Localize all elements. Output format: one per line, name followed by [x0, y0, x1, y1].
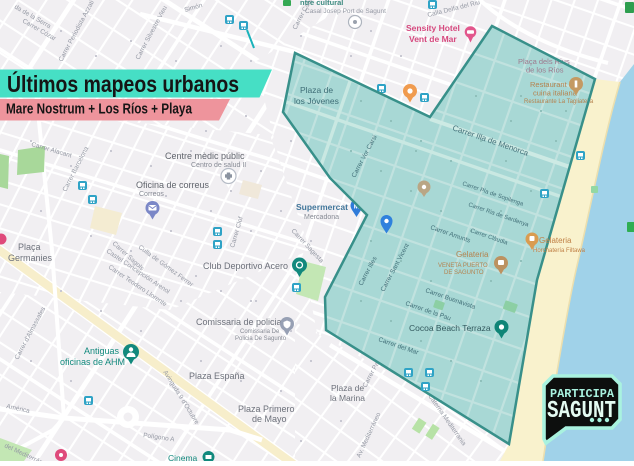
svg-text:los Jóvenes: los Jóvenes	[294, 96, 339, 106]
svg-text:Oficina de correus: Oficina de correus	[136, 180, 210, 190]
svg-text:Cocoa Beach Terraza: Cocoa Beach Terraza	[409, 323, 491, 333]
svg-text:DE SAGUNTO: DE SAGUNTO	[444, 270, 484, 276]
svg-text:de los Ríos: de los Ríos	[526, 66, 564, 75]
svg-text:de Mayo: de Mayo	[252, 414, 287, 424]
svg-text:cuina italiana: cuina italiana	[533, 89, 578, 98]
svg-text:Horchatería Filtawa: Horchatería Filtawa	[533, 248, 586, 254]
svg-text:Gelateria: Gelateria	[456, 250, 489, 259]
svg-text:Últimos mapeos urbanos: Últimos mapeos urbanos	[7, 70, 239, 97]
svg-text:Policia De Sagunto: Policia De Sagunto	[235, 336, 287, 342]
svg-text:oficinas de AHM: oficinas de AHM	[60, 357, 125, 367]
svg-text:VENETA PUERTO: VENETA PUERTO	[438, 263, 488, 269]
svg-text:Supermercat: Supermercat	[296, 202, 348, 212]
svg-text:Correos: Correos	[139, 191, 164, 198]
svg-text:Club Deportivo Acero: Club Deportivo Acero	[203, 261, 288, 271]
svg-text:Comissaria de policia: Comissaria de policia	[196, 317, 282, 327]
svg-text:Plaza Primero: Plaza Primero	[238, 404, 295, 414]
svg-text:Mare Nostrum + Los Ríos + Play: Mare Nostrum + Los Ríos + Playa	[6, 102, 193, 118]
svg-text:Comissaria De: Comissaria De	[240, 329, 280, 335]
svg-text:Cinema: Cinema	[168, 453, 198, 461]
svg-text:Gelateria: Gelateria	[539, 236, 572, 245]
svg-text:Restaurante La Tagliatella: Restaurante La Tagliatella	[524, 99, 594, 105]
svg-text:Centro de salud II: Centro de salud II	[191, 162, 246, 169]
svg-text:Sensity Hotel: Sensity Hotel	[406, 23, 460, 33]
svg-text:Vent de Mar: Vent de Mar	[409, 34, 457, 44]
svg-text:la Marina: la Marina	[330, 393, 365, 403]
svg-text:ntre cultural: ntre cultural	[300, 0, 343, 7]
svg-text:Plaza de: Plaza de	[300, 85, 333, 95]
svg-text:Antiguas: Antiguas	[84, 346, 120, 356]
svg-text:Casal Josep Port de Sagunt: Casal Josep Port de Sagunt	[305, 8, 386, 15]
svg-text:Centre mèdic públic: Centre mèdic públic	[165, 151, 245, 161]
svg-text:Mercadona: Mercadona	[304, 214, 339, 221]
svg-text:Plaza España: Plaza España	[189, 371, 245, 381]
svg-text:Plaza de: Plaza de	[331, 383, 364, 393]
svg-text:Plaça: Plaça	[18, 242, 41, 252]
svg-text:Germanies: Germanies	[8, 253, 53, 263]
